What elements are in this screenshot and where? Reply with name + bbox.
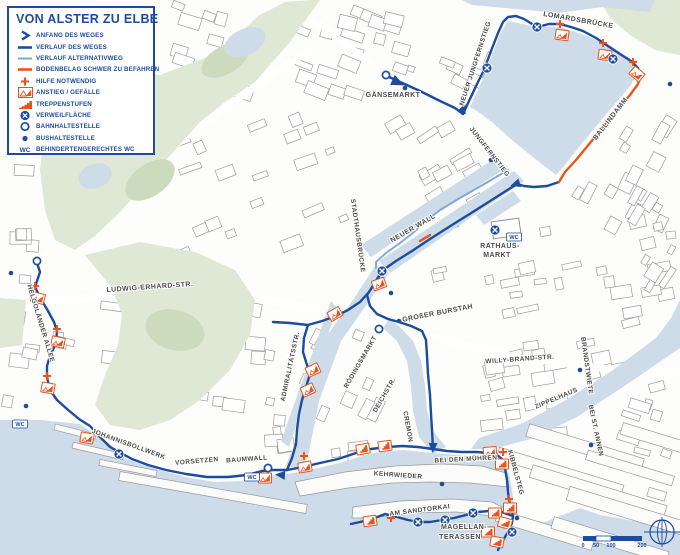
building-block [539, 226, 551, 236]
line-difficult-icon [16, 64, 34, 75]
building-block [214, 11, 228, 26]
scale-bar-label: 0 [581, 543, 584, 549]
legend-title: VON ALSTER ZU ELBE [16, 12, 148, 26]
street-label: CREMON [401, 411, 413, 443]
building-block [179, 162, 202, 175]
legend-item-bus-stop: BUSHALTESTELLE [14, 133, 148, 144]
building-block [500, 277, 519, 288]
line-main-icon [16, 42, 34, 53]
incline-marker-icon [41, 382, 56, 394]
building-block [480, 418, 503, 431]
building-block [640, 237, 657, 251]
building-block [340, 391, 357, 409]
legend-item-list: ANFANG DES WEGESVERLAUF DES WEGESVERLAUF… [14, 30, 148, 155]
building-block [481, 395, 491, 402]
building-block [661, 448, 673, 458]
steps-icon [16, 99, 34, 110]
bus-stop-icon [589, 443, 594, 448]
rest-area-icon [490, 225, 500, 235]
building-block [620, 142, 631, 153]
building-block [316, 405, 330, 422]
wc-label: WC [247, 475, 256, 481]
building-block [496, 397, 519, 407]
rest-area-icon [507, 527, 517, 537]
legend-item-line-main: VERLAUF DES WEGES [14, 41, 148, 52]
legend-item-incline: ANSTIEG / GEFÄLLE [14, 87, 148, 98]
rail-stop-icon [382, 71, 389, 78]
street-label: STADTHAUSBRÜCKE [349, 198, 368, 273]
building-block [506, 409, 521, 420]
building-block [245, 336, 266, 351]
building-block [648, 381, 665, 393]
building-block [331, 448, 341, 458]
street-label: TERASSEN [439, 534, 481, 541]
building-block [604, 276, 615, 288]
rail-stop-icon [33, 257, 40, 264]
building-block [647, 487, 667, 501]
bus-stop-icon [403, 86, 408, 91]
steps-marker-icon [378, 440, 392, 452]
building-block [247, 119, 267, 133]
steps-marker-icon [504, 503, 517, 513]
bus-stop-icon [668, 82, 673, 87]
legend-icon-slot [14, 42, 36, 53]
building-block [485, 275, 495, 285]
building-block [641, 254, 651, 265]
rail-stop-icon [264, 464, 271, 471]
building-block [604, 216, 622, 235]
building-block [19, 275, 31, 284]
alsterfleet-south [286, 266, 389, 470]
building-block [284, 129, 301, 144]
building-block [531, 370, 555, 387]
legend-icon-slot [14, 133, 36, 144]
wc-label: WC [509, 235, 518, 241]
accessible-wc-icon: WC [507, 233, 522, 241]
street-label: MARKT [483, 252, 511, 259]
building-block [17, 229, 27, 240]
incline-marker-icon [259, 473, 272, 483]
scale-bar-segment [611, 536, 642, 541]
street-label: MAGELLAN- [441, 524, 487, 531]
legend-item-help-plus: HILFE NOTWENDIG [14, 76, 148, 87]
building-block [634, 447, 651, 457]
building-block [317, 64, 339, 79]
scale-bar-segment [583, 536, 596, 541]
legend-item-label: BODENBELAG SCHWER ZU BEFAHREN [36, 66, 159, 73]
building-block [264, 350, 275, 362]
building-block [362, 377, 373, 390]
building-block [392, 41, 411, 57]
incline-icon [16, 87, 34, 98]
building-block [666, 231, 676, 239]
scale-bar-label: 50 [593, 543, 599, 549]
street-label: BAUMWALL [226, 455, 268, 465]
bus-stop-icon [440, 482, 445, 487]
building-block [14, 165, 34, 176]
incline-marker-icon [298, 461, 313, 473]
street-label: GROßER BURSTAH [402, 303, 474, 324]
building-block [225, 229, 236, 239]
legend-item-line-alt: VERLAUF ALTERNATIVWEG [14, 53, 148, 64]
scale-bar-segment [596, 536, 611, 541]
building-block [280, 234, 304, 253]
building-block [251, 351, 266, 365]
rest-area-icon [413, 517, 423, 527]
legend-item-label: BAHNHALTESTELLE [36, 123, 100, 130]
park-small-west [0, 298, 26, 348]
bus-stop-icon [389, 291, 394, 296]
street-label: VORSETZEN [175, 456, 219, 467]
legend-icon-slot [14, 53, 36, 64]
building-block [178, 12, 202, 30]
building-block [502, 308, 516, 319]
building-block [653, 222, 663, 232]
building-block [621, 410, 640, 421]
legend-item-label: ANFANG DES WEGES [36, 32, 104, 39]
building-block [265, 397, 274, 406]
building-block [215, 164, 236, 181]
rest-area-icon [16, 110, 34, 121]
bus-stop-icon [397, 319, 402, 324]
building-block [171, 0, 185, 11]
incline-marker-icon [555, 29, 569, 41]
help-needed-icon [43, 372, 51, 380]
building-block [222, 398, 245, 413]
building-block [303, 122, 319, 135]
accessible-wc-icon: WC [245, 473, 260, 481]
building-block [250, 197, 264, 208]
building-block [562, 261, 582, 271]
legend-item-rail-stop: BAHNHALTESTELLE [14, 121, 148, 132]
street-label: RATHAUS- [480, 243, 520, 250]
building-block [337, 14, 357, 31]
building-block [534, 278, 546, 285]
bus-stop-icon [9, 271, 14, 276]
legend-item-steps: TREPPENSTUFEN [14, 98, 148, 109]
legend-item-label: VERWEILFLÄCHE [36, 112, 91, 119]
building-block [622, 305, 642, 319]
street-label: ADMIRALITÄTSSTR. [279, 331, 302, 402]
building-block [207, 34, 224, 48]
wc-icon: WC [16, 144, 34, 155]
legend-item-label: VERLAUF ALTERNATIVWEG [36, 55, 123, 62]
building-block [294, 153, 318, 171]
rest-area-icon [468, 508, 478, 518]
legend-icon-slot [14, 121, 36, 132]
rest-area-icon [482, 63, 492, 73]
bus-stop-icon [16, 133, 34, 144]
building-block [554, 277, 564, 290]
legend-item-label: ANSTIEG / GEFÄLLE [36, 89, 100, 96]
bus-stop-icon [24, 404, 29, 409]
svg-text:WC: WC [20, 147, 31, 154]
incline-marker-icon [51, 336, 66, 348]
legend-panel: VON ALSTER ZU ELBE ANFANG DES WEGESVERLA… [7, 6, 155, 155]
rail-stop-icon [375, 325, 382, 332]
steps-marker-icon [363, 515, 377, 527]
building-block [252, 171, 268, 181]
building-block [193, 140, 207, 155]
legend-icon-slot [14, 30, 36, 41]
rest-area-icon [377, 266, 387, 276]
building-block [344, 85, 365, 100]
legend-icon-slot [14, 64, 36, 75]
building-block [392, 62, 408, 75]
map-page: WCWCWC GÄNSEMARKTNEUER JUNGFERNSTIEGLOMA… [0, 0, 680, 555]
legend-item-rest-area: VERWEILFLÄCHE [14, 110, 148, 121]
building-block [604, 184, 618, 199]
bus-stop-icon [578, 368, 583, 373]
legend-icon-slot [14, 76, 36, 87]
binnenalster-lake [470, 21, 638, 175]
building-block [328, 84, 346, 99]
rest-area-icon [532, 22, 542, 32]
legend-icon-slot: WC [14, 144, 36, 155]
building-block [650, 409, 662, 422]
building-block [325, 147, 335, 155]
building-block [1, 395, 13, 408]
building-block [339, 214, 349, 223]
help-plus-icon [16, 76, 34, 87]
building-block [273, 415, 285, 427]
building-block [302, 203, 325, 218]
steps-marker-icon [490, 536, 505, 548]
line-alt-icon [16, 53, 34, 64]
rail-stop-icon [16, 121, 34, 132]
building-block [510, 291, 523, 298]
building-block [517, 304, 539, 314]
scale-bar-label: 200 [637, 543, 646, 549]
building-block [433, 266, 447, 273]
bus-stop-icon [515, 516, 520, 521]
wc-label: WC [15, 422, 24, 428]
building-block [488, 377, 505, 391]
street-label: DEICHSTR. [372, 377, 398, 414]
legend-item-start-arrow: ANFANG DES WEGES [14, 30, 148, 41]
legend-item-label: BEHINDERTENGERECHTES WC [36, 146, 135, 153]
accessible-wc-icon: WC [13, 420, 28, 428]
scale-bar-label: 100 [606, 543, 615, 549]
legend-item-line-difficult: BODENBELAG SCHWER ZU BEFAHREN [14, 64, 148, 75]
legend-item-label: TREPPENSTUFEN [36, 101, 92, 108]
legend-item-label: VERLAUF DES WEGES [36, 44, 107, 51]
building-block [596, 266, 607, 276]
start-arrow-icon [16, 30, 34, 41]
rest-area-icon [114, 449, 124, 459]
building-block [352, 329, 364, 341]
building-block [417, 126, 439, 144]
building-block [667, 245, 676, 255]
building-block [619, 126, 633, 142]
legend-item-wc: WCBEHINDERTENGERECHTES WC [14, 144, 148, 155]
building-block [374, 33, 387, 46]
legend-icon-slot [14, 110, 36, 121]
building-block [202, 10, 216, 22]
legend-icon-slot [14, 99, 36, 110]
legend-item-label: HILFE NOTWENDIG [36, 78, 96, 85]
building-block [304, 81, 329, 101]
steps-marker-icon [356, 443, 371, 455]
rest-area-icon [608, 54, 618, 64]
legend-icon-slot [14, 87, 36, 98]
street-label: GÄNSEMARKT [366, 91, 421, 99]
legend-item-label: BUSHALTESTELLE [36, 135, 95, 142]
building-block [646, 152, 666, 173]
building-block [288, 112, 303, 127]
building-block [436, 121, 455, 138]
